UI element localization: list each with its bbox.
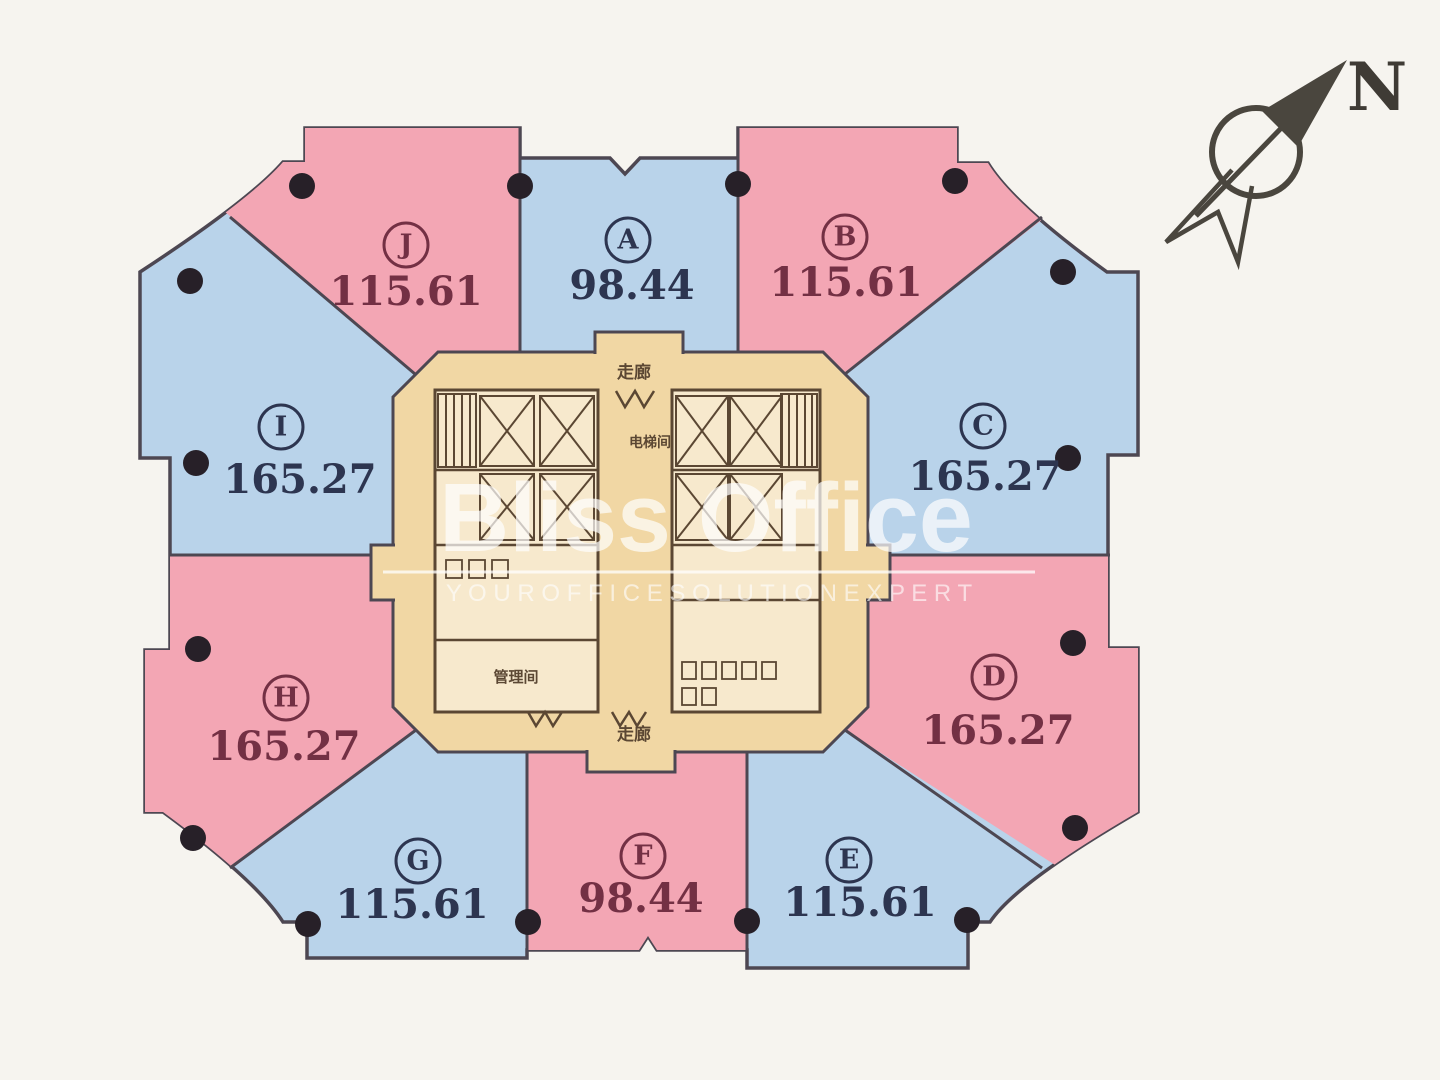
label-elevator-hall: 电梯间 [629,434,671,451]
label-management-room: 管理间 [493,668,538,686]
column-dot [507,173,533,199]
column-dot [1062,815,1088,841]
column-dot [185,636,211,662]
unit-letter: F [633,841,652,872]
unit-area: 115.61 [335,881,488,928]
column-dot [180,825,206,851]
unit-letter: J [398,230,413,261]
label-corridor-bottom: 走廊 [617,724,651,745]
column-dot [289,173,315,199]
unit-letter: A [617,225,640,256]
watermark-title: Bliss Office [439,463,973,572]
column-dot [183,450,209,476]
column-dot [734,908,760,934]
column-dot [954,907,980,933]
unit-area: 165.27 [207,723,360,770]
watermark-subtitle: Y O U R O F F I C E S O L U T I O N E X … [446,580,973,607]
column-dot [177,268,203,294]
column-dot [515,909,541,935]
unit-area: 98.44 [569,262,694,309]
unit-letter: I [275,412,288,443]
unit-area: 165.27 [223,456,376,503]
column-dot [1060,630,1086,656]
core-tab-bottom [587,750,675,772]
floor-plan-svg: 走廊 电梯间 管理间 走廊 J 115.61 A 98.44 B [0,0,1440,1080]
compass-north-label: N [1347,48,1407,126]
unit-letter: H [273,683,299,714]
floor-plan-page: 走廊 电梯间 管理间 走廊 J 115.61 A 98.44 B [0,0,1440,1080]
unit-letter: C [972,411,994,442]
watermark: Bliss Office Y O U R O F F I C E S O L U… [383,463,1035,607]
unit-area: 165.27 [921,707,1074,754]
column-dot [295,911,321,937]
column-dot [725,171,751,197]
unit-letter: E [839,845,860,876]
column-dot [942,168,968,194]
unit-letter: B [834,222,857,253]
label-corridor-top: 走廊 [617,362,651,383]
unit-letter: D [982,662,1005,693]
column-dot [1050,259,1076,285]
unit-area: 115.61 [769,259,922,306]
core-tab-top [595,332,683,354]
unit-area: 115.61 [329,268,482,315]
unit-letter: G [406,846,429,877]
unit-area: 98.44 [578,875,703,922]
unit-area: 115.61 [783,879,936,926]
